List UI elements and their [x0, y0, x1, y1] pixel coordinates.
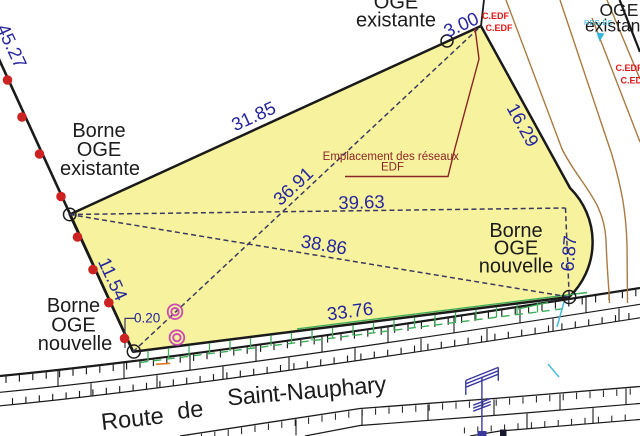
- svg-text:C.EDF: C.EDF: [486, 23, 514, 33]
- svg-text:C.EDF: C.EDF: [616, 63, 640, 73]
- svg-text:6.87: 6.87: [556, 235, 580, 273]
- svg-text:39.63: 39.63: [338, 191, 385, 213]
- svg-text:C.EDF: C.EDF: [621, 76, 640, 86]
- svg-text:nouvelle: nouvelle: [479, 256, 554, 278]
- svg-text:existante: existante: [60, 158, 140, 180]
- svg-text:existante: existante: [356, 10, 436, 32]
- svg-text:C.EDF: C.EDF: [482, 11, 510, 21]
- svg-text:0.20: 0.20: [134, 311, 160, 326]
- svg-text:REG.BC: REG.BC: [584, 18, 613, 27]
- svg-text:EDF: EDF: [381, 162, 404, 174]
- svg-text:nouvelle: nouvelle: [38, 333, 113, 355]
- svg-text:de: de: [176, 395, 205, 424]
